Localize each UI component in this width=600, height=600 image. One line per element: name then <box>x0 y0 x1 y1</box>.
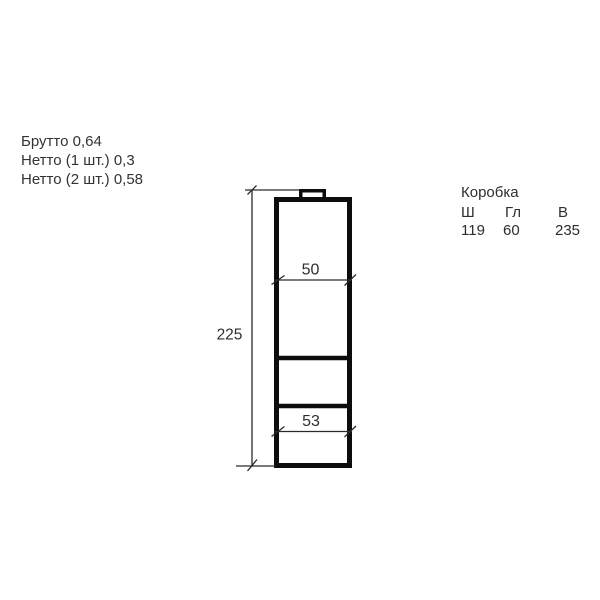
svg-text:50: 50 <box>302 262 320 279</box>
svg-text:225: 225 <box>217 327 243 344</box>
svg-text:53: 53 <box>302 413 320 430</box>
